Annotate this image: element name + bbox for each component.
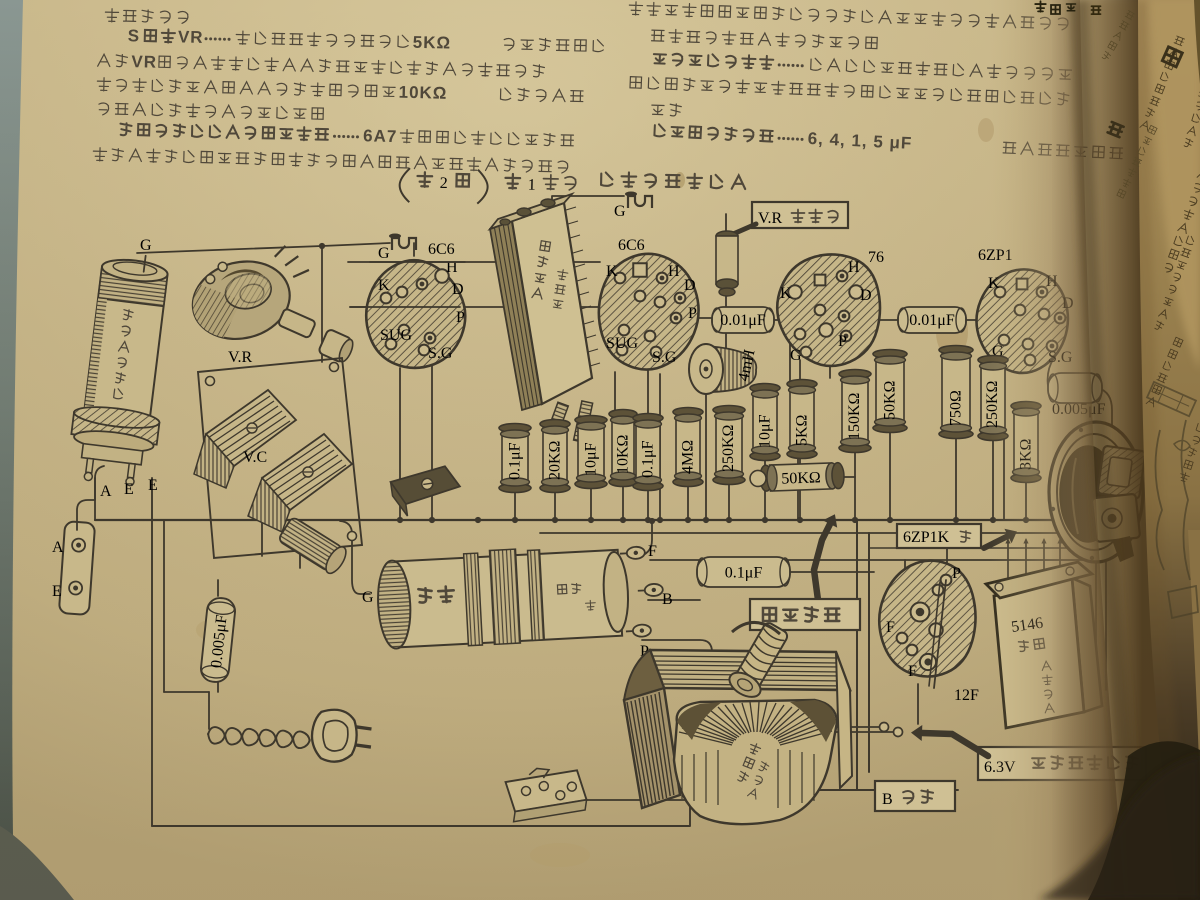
svg-text:V.C: V.C — [243, 449, 267, 466]
svg-text:SUG: SUG — [380, 327, 412, 344]
svg-text:K: K — [606, 263, 618, 280]
svg-text:S: S — [128, 26, 141, 45]
svg-text:12F: 12F — [954, 687, 979, 704]
svg-text:V.R: V.R — [758, 210, 782, 227]
svg-text:0.1μF: 0.1μF — [639, 440, 656, 478]
svg-text:D: D — [452, 281, 464, 298]
svg-text:S.G: S.G — [652, 349, 677, 366]
svg-text:150KΩ: 150KΩ — [846, 392, 863, 440]
svg-text:F: F — [648, 543, 657, 560]
svg-text:A: A — [100, 483, 112, 500]
svg-text:0.01μF: 0.01μF — [909, 312, 955, 329]
svg-text:50KΩ: 50KΩ — [881, 380, 898, 420]
svg-text:VR: VR — [178, 27, 204, 47]
svg-text:SUG: SUG — [606, 335, 638, 352]
svg-text:E: E — [124, 481, 134, 498]
svg-text:E: E — [148, 477, 158, 494]
svg-text:10KΩ: 10KΩ — [614, 434, 631, 474]
svg-text:P: P — [838, 333, 847, 350]
svg-text:F: F — [908, 663, 917, 680]
svg-text:20KΩ: 20KΩ — [546, 440, 563, 480]
svg-text:6C6: 6C6 — [618, 237, 645, 254]
svg-text:P: P — [688, 305, 697, 322]
svg-text:6ZP1K: 6ZP1K — [903, 529, 950, 546]
svg-text:0.1μF: 0.1μF — [507, 442, 524, 480]
svg-text:4MΩ: 4MΩ — [680, 440, 697, 474]
svg-text:VR: VR — [131, 52, 157, 72]
svg-text:P: P — [952, 565, 961, 582]
svg-text:B: B — [882, 791, 893, 808]
svg-text:G: G — [362, 589, 374, 606]
svg-text:A: A — [52, 539, 64, 556]
svg-text:V.R: V.R — [228, 349, 252, 366]
svg-text:0.01μF: 0.01μF — [720, 312, 766, 329]
svg-text:H: H — [848, 259, 860, 276]
svg-text:0.1μF: 0.1μF — [725, 564, 763, 581]
svg-text:P: P — [456, 309, 465, 326]
svg-text:D: D — [860, 287, 872, 304]
svg-text:5KΩ: 5KΩ — [413, 33, 452, 53]
svg-text:2: 2 — [440, 175, 448, 192]
svg-text:G: G — [140, 237, 152, 254]
svg-text:6A7: 6A7 — [363, 126, 398, 146]
svg-text:G: G — [378, 245, 390, 262]
svg-text:1: 1 — [527, 177, 535, 194]
svg-text:10μF: 10μF — [583, 442, 600, 476]
svg-text:F: F — [886, 619, 895, 636]
svg-text:G: G — [614, 203, 626, 220]
svg-text:G: G — [790, 347, 802, 364]
svg-text:S.G: S.G — [428, 345, 453, 362]
svg-text:750Ω: 750Ω — [948, 390, 965, 426]
svg-text:K: K — [780, 285, 792, 302]
svg-text:H: H — [668, 263, 680, 280]
svg-text:E: E — [52, 583, 62, 600]
svg-text:6C6: 6C6 — [428, 241, 455, 258]
svg-text:D: D — [684, 277, 696, 294]
svg-text:5KΩ: 5KΩ — [794, 414, 811, 446]
svg-text:50KΩ: 50KΩ — [781, 469, 821, 487]
svg-text:76: 76 — [868, 249, 884, 266]
svg-text:10μF: 10μF — [757, 414, 774, 448]
svg-text:B: B — [662, 591, 673, 608]
svg-text:250KΩ: 250KΩ — [720, 424, 737, 472]
svg-text:10KΩ: 10KΩ — [398, 83, 447, 103]
svg-text:K: K — [378, 277, 390, 294]
